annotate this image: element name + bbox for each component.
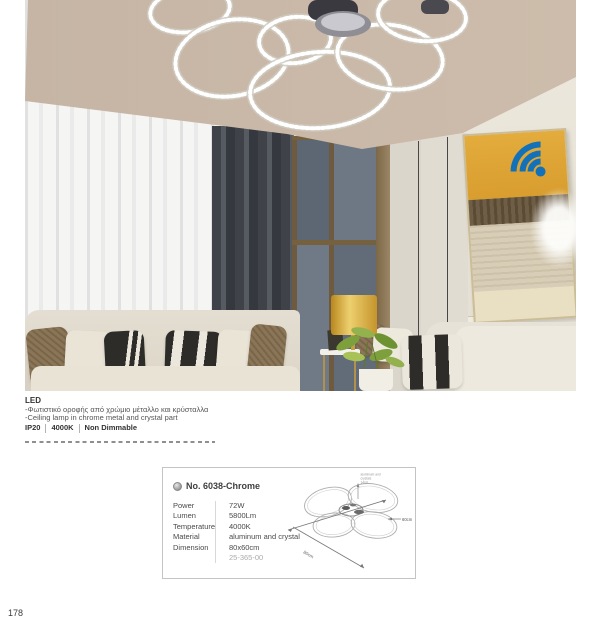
model-number: No. 6038-Chrome [186,481,260,491]
partition-pane [297,140,329,240]
dashed-divider [25,441,215,443]
spec-label: Dimension [173,543,215,553]
right-sofa-cushion [455,326,576,391]
diagram-annotation-line3: 14cm [361,481,369,485]
left-sofa-seat [31,366,300,391]
page-number: 178 [8,608,23,618]
color-temp-badge: 4000K [45,424,73,433]
panel-seam [447,137,448,337]
plant-pot [359,369,393,391]
chrome-sphere-icon [173,482,182,491]
spec-value: 80x60cm [215,543,259,553]
spec-label: Material [173,532,215,542]
product-description: LED -Φωτιστικό οροφής από χρώμιο μέταλλο… [25,397,208,433]
spec-badges: IP20 4000K Non Dimmable [25,424,208,433]
dimension-diagram: 80cm 60cm aluminum and crystals 14cm [269,469,415,577]
depth-dimension-label: 60cm [402,517,413,522]
spec-value: 72W [215,501,244,511]
panel-seam [418,141,419,337]
ip-rating-badge: IP20 [25,424,40,433]
spec-label: Lumen [173,511,215,521]
spec-value: 5800Lm [215,511,256,521]
partition-frame [292,240,376,245]
width-dimension-label: 80cm [303,550,315,560]
spec-value: 4000K [215,522,251,532]
spec-box: No. 6038-Chrome Power 72W Lumen 5800Lm T… [162,467,416,579]
potted-plant [333,328,415,391]
catalog-page: LED -Φωτιστικό οροφής από χρώμιο μέταλλο… [0,0,600,630]
product-photo [25,0,576,391]
product-code: 25-365-00 [215,553,263,563]
description-english: -Ceiling lamp in chrome metal and crysta… [25,414,208,423]
dimmable-badge: Non Dimmable [79,424,138,433]
crystal-ceiling-lamp [25,0,576,140]
side-table-leg [323,355,325,391]
spec-label: Power [173,501,215,511]
partition-pane [334,140,376,240]
model-header: No. 6038-Chrome [173,481,260,491]
spec-label: Temperature [173,522,215,532]
